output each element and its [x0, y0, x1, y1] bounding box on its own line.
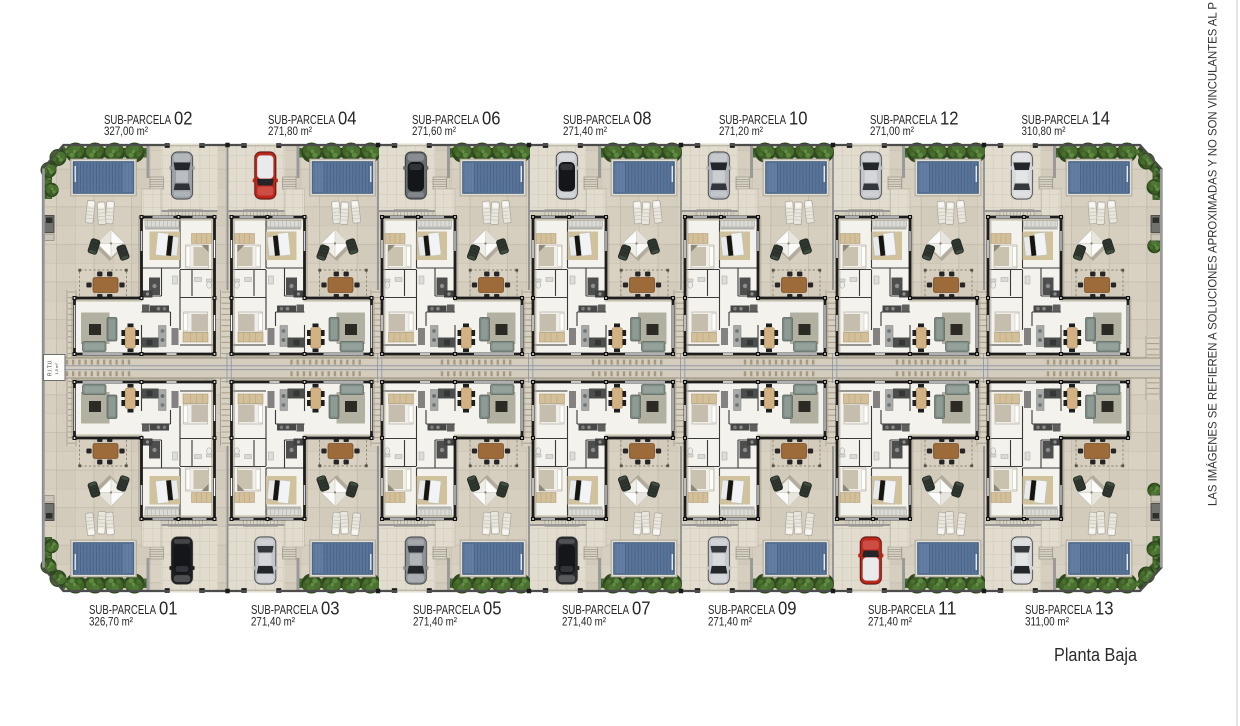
- svg-text:271,40 m²: 271,40 m²: [868, 615, 912, 629]
- svg-text:14: 14: [1092, 108, 1111, 129]
- svg-text:271,20 m²: 271,20 m²: [719, 124, 763, 138]
- svg-text:09: 09: [778, 598, 797, 619]
- svg-text:05: 05: [483, 598, 502, 619]
- svg-text:271,40 m²: 271,40 m²: [563, 124, 607, 138]
- svg-text:271,40 m²: 271,40 m²: [413, 615, 457, 629]
- svg-text:10: 10: [789, 108, 808, 129]
- svg-text:R.I.T.U.: R.I.T.U.: [48, 359, 54, 376]
- svg-text:08: 08: [633, 108, 652, 129]
- svg-text:271,60 m²: 271,60 m²: [412, 124, 456, 138]
- svg-text:13: 13: [1095, 598, 1114, 619]
- svg-text:271,80 m²: 271,80 m²: [268, 124, 312, 138]
- svg-text:311,00 m²: 311,00 m²: [1025, 615, 1069, 629]
- svg-text:271,40 m²: 271,40 m²: [562, 615, 606, 629]
- svg-text:12: 12: [940, 108, 959, 129]
- svg-text:Planta Baja: Planta Baja: [1054, 644, 1138, 665]
- svg-text:LAS IMÁGENES SE REFIEREN A SOL: LAS IMÁGENES SE REFIEREN A SOLUCIONES AP…: [1207, 2, 1220, 506]
- svg-text:02: 02: [174, 108, 193, 129]
- svg-text:03: 03: [321, 598, 340, 619]
- svg-text:310,80 m²: 310,80 m²: [1022, 124, 1066, 138]
- svg-text:271,00 m²: 271,00 m²: [870, 124, 914, 138]
- svg-text:271,40 m²: 271,40 m²: [708, 615, 752, 629]
- svg-text:326,70 m²: 326,70 m²: [89, 615, 133, 629]
- svg-text:04: 04: [338, 108, 357, 129]
- svg-text:01: 01: [159, 598, 178, 619]
- svg-text:06: 06: [482, 108, 501, 129]
- svg-text:271,40 m²: 271,40 m²: [251, 615, 295, 629]
- svg-text:327,00 m²: 327,00 m²: [104, 124, 148, 138]
- svg-text:07: 07: [632, 598, 651, 619]
- svg-text:1,5 m²: 1,5 m²: [54, 362, 59, 374]
- svg-text:11: 11: [938, 598, 957, 619]
